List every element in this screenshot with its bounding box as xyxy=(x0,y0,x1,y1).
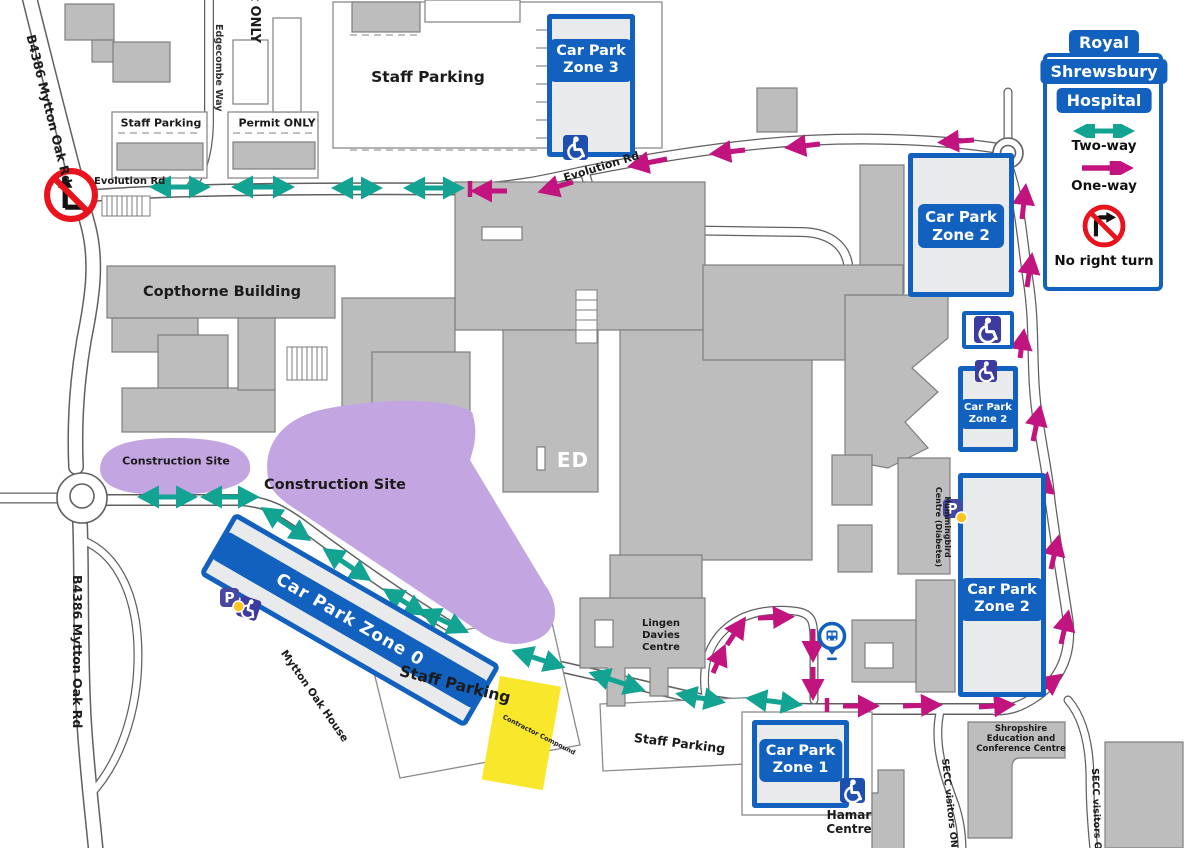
legend-title-line1: Royal xyxy=(1069,30,1139,55)
legend-no-right-turn-icon xyxy=(1081,203,1127,249)
construction-site-west-label: Construction Site xyxy=(122,455,230,468)
legend-title-line2: Shrewsbury xyxy=(1040,59,1167,84)
zone2-south-label-line2: Zone 2 xyxy=(967,599,1036,616)
zone2-main-label-line2: Zone 2 xyxy=(925,226,997,244)
hamar-centre-label: Hamar Centre xyxy=(818,808,880,836)
construction-site-main-label: Construction Site xyxy=(264,477,406,493)
secc-building-label: Shropshire Education and Conference Cent… xyxy=(974,724,1068,754)
car-park-zone-3: Car Park Zone 3 xyxy=(547,14,635,157)
zone1-label-line1: Car Park xyxy=(766,743,835,760)
zone2-small-label-line2: Zone 2 xyxy=(964,414,1012,426)
lingen-davies-label: Lingen Davies Centre xyxy=(622,618,700,653)
permit-only-label: Permit ONLY xyxy=(238,117,315,130)
legend-two-way-label: Two-way xyxy=(1071,138,1136,154)
car-park-zone-2-small: Car Park Zone 2 xyxy=(958,366,1018,452)
staff-parking-northwest-label: Staff Parking xyxy=(121,117,202,130)
edgecombe-way-label: Edgecombe Way xyxy=(213,24,224,112)
legend-two-way-arrow-icon xyxy=(1072,124,1136,138)
roundabout-west xyxy=(57,473,107,523)
zone2-main-label-line1: Car Park xyxy=(925,208,997,226)
copthorne-building-label: Copthorne Building xyxy=(143,284,301,300)
car-park-zone-1: Car Park Zone 1 xyxy=(752,720,849,808)
ed-label: ED xyxy=(557,448,589,472)
evolution-rd-west-label: Evolution Rd xyxy=(94,176,165,187)
legend-title-line3: Hospital xyxy=(1057,88,1152,113)
b4386-south-label: B4386 Mytton Oak Rd xyxy=(70,575,85,728)
hospital-site-map: Car Park Zone 3 Car Park Zone 2 Car Park… xyxy=(0,0,1200,848)
hummingbird-centre-label: Hummingbird Centre (Diabetes) xyxy=(933,483,952,571)
zone3-label-line2: Zone 3 xyxy=(556,60,625,77)
zone2-small-label-line1: Car Park xyxy=(964,402,1012,414)
zone1-label-line2: Zone 1 xyxy=(766,760,835,777)
car-park-zone-2-south: Car Park Zone 2 xyxy=(958,473,1046,697)
legend-one-way-arrow-icon xyxy=(1074,161,1138,175)
zone2-south-label-line1: Car Park xyxy=(967,582,1036,599)
legend-one-way-label: One-way xyxy=(1071,178,1137,194)
car-park-zone-2-main: Car Park Zone 2 xyxy=(908,153,1014,297)
accessible-parking-bay xyxy=(962,311,1014,349)
zone3-label-line1: Car Park xyxy=(556,43,625,60)
staff-parking-north-label: Staff Parking xyxy=(371,68,485,86)
permit-only-vertical-label: Permit ONLY xyxy=(247,0,262,43)
legend-no-right-turn-label: No right turn xyxy=(1054,253,1153,269)
